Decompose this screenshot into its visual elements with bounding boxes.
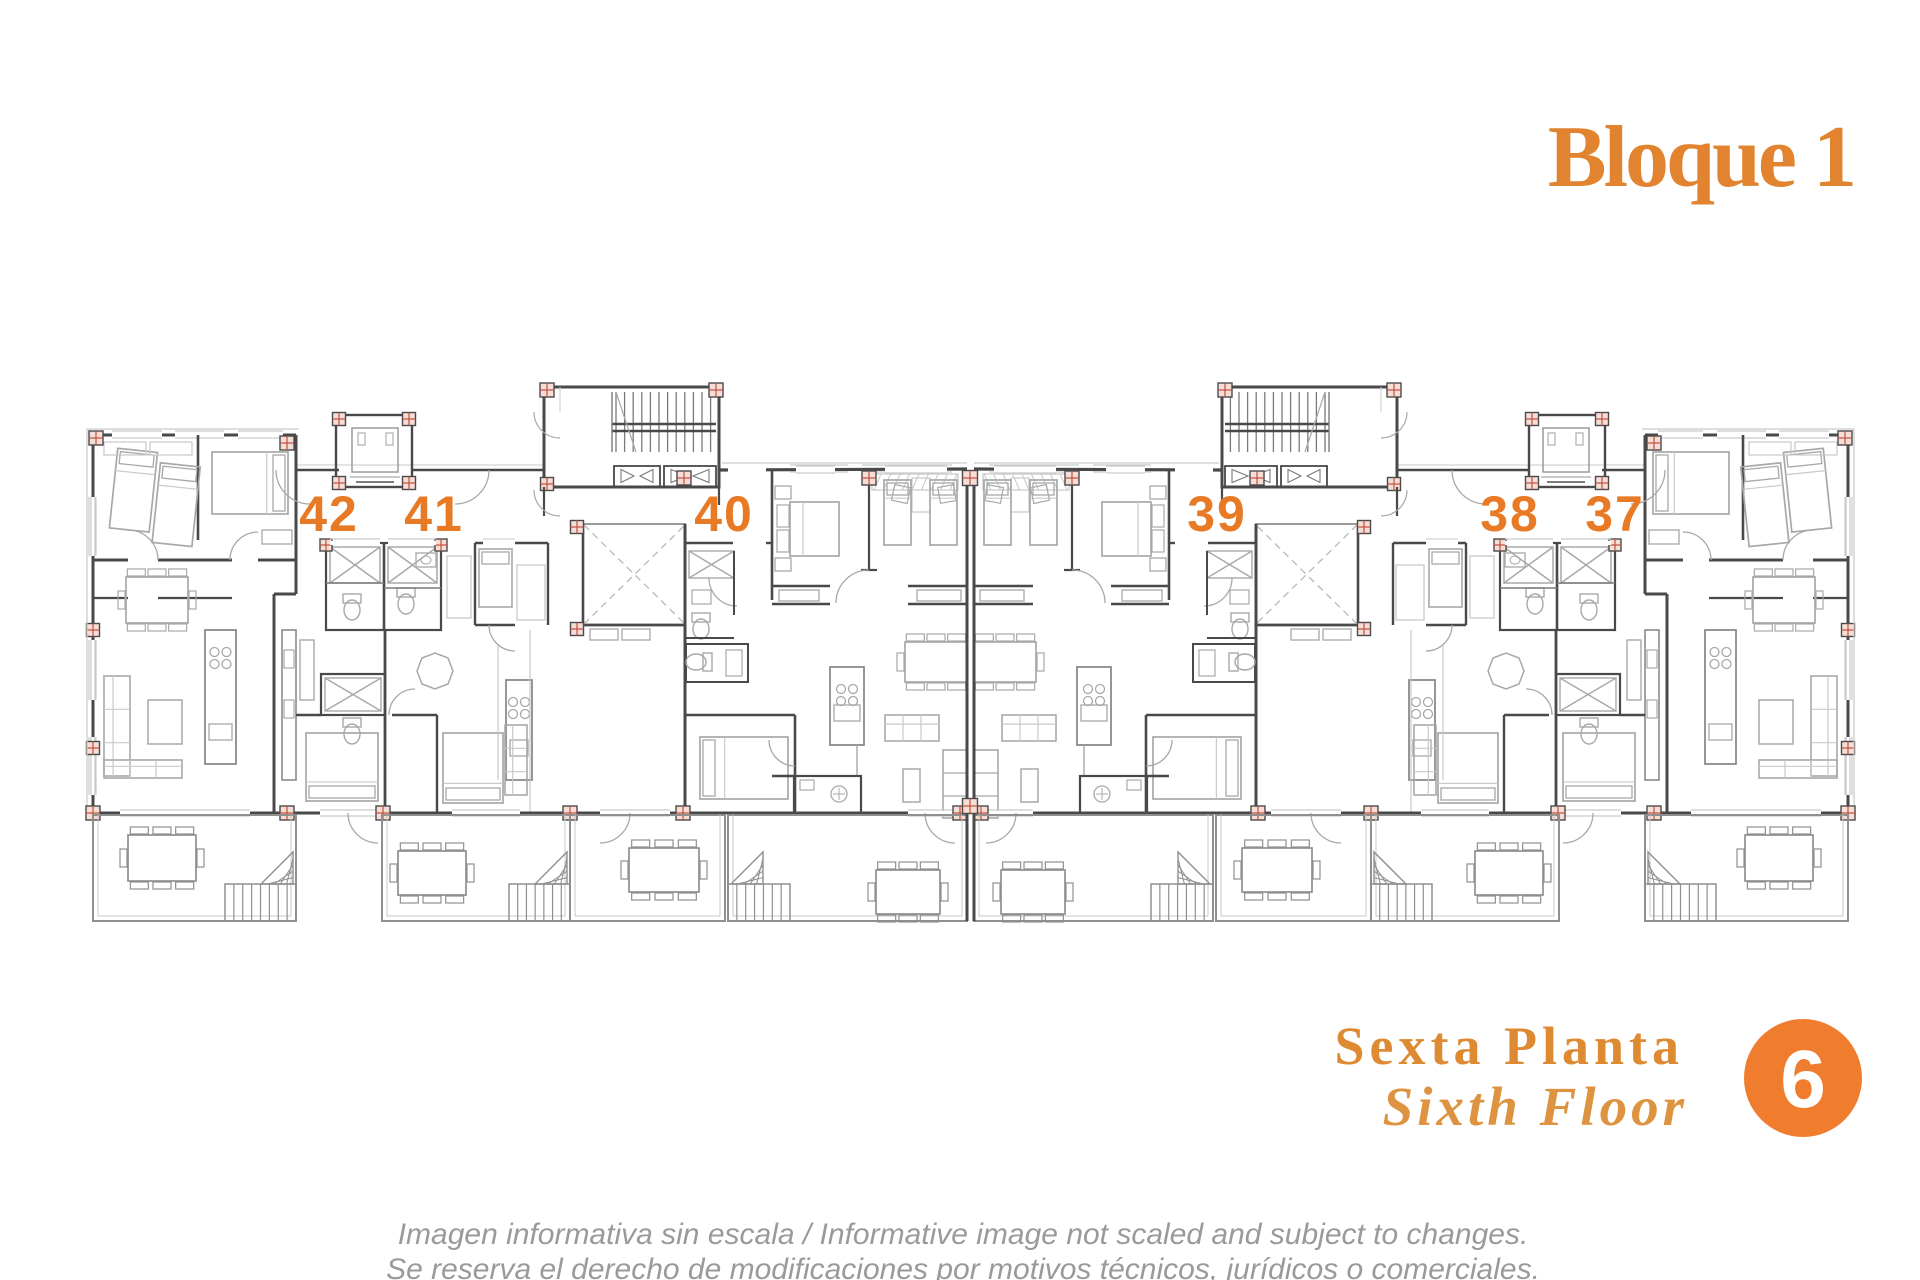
svg-text:6: 6 [1780, 1034, 1826, 1125]
svg-text:41: 41 [404, 486, 464, 542]
svg-text:39: 39 [1187, 486, 1247, 542]
svg-text:Bloque 1: Bloque 1 [1548, 109, 1854, 206]
svg-text:Sixth Floor: Sixth Floor [1383, 1076, 1688, 1137]
svg-text:38: 38 [1480, 486, 1540, 542]
svg-text:37: 37 [1585, 486, 1645, 542]
svg-text:42: 42 [299, 486, 359, 542]
svg-text:Imagen informativa sin escala: Imagen informativa sin escala / Informat… [398, 1218, 1529, 1251]
svg-text:Sexta Planta: Sexta Planta [1335, 1016, 1685, 1076]
svg-text:40: 40 [694, 486, 754, 542]
svg-text:Se reserva el derecho de modif: Se reserva el derecho de modificaciones … [386, 1253, 1540, 1280]
